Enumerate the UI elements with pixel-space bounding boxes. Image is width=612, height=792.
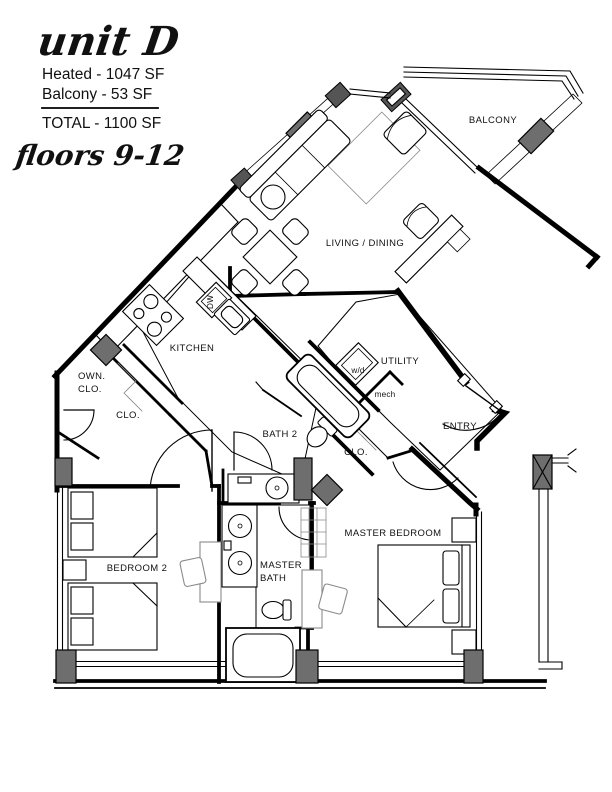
room-label-utility: UTILITY <box>381 356 419 367</box>
column <box>56 650 76 683</box>
twin-bed-1 <box>68 488 157 557</box>
master-bath-door-swing <box>279 507 312 540</box>
room-label-balcony: BALCONY <box>469 115 517 126</box>
floor-plan-drawing: unit D Heated - 1047 SF Balcony - 53 SF … <box>0 0 612 792</box>
desk-chair-b2 <box>180 557 207 587</box>
room-label-entry: ENTRY <box>443 421 477 432</box>
label-mech: mech <box>375 390 396 399</box>
floor-plan-page: unit D Heated - 1047 SF Balcony - 53 SF … <box>0 0 612 792</box>
column <box>296 650 318 683</box>
armchair <box>382 110 427 155</box>
plan-header: unit D Heated - 1047 SF Balcony - 53 SF … <box>12 18 187 172</box>
nightstand-b2 <box>63 560 86 580</box>
own-clo-door-swing <box>64 410 94 440</box>
master-bath-fixtures <box>222 505 300 682</box>
label-owners-closet-1: OWN. <box>78 371 105 382</box>
room-label-bath2: BATH 2 <box>263 429 298 440</box>
heated-area-text: Heated - 1047 SF <box>42 66 164 83</box>
label-dishwasher: DW <box>206 295 215 309</box>
column <box>464 650 483 683</box>
washer-dryer <box>336 343 378 385</box>
corridor-wall <box>479 168 597 257</box>
desk-master <box>302 570 322 628</box>
shower-rod <box>263 390 301 416</box>
balcony-column <box>518 118 553 153</box>
room-label-kitchen: KITCHEN <box>170 343 215 354</box>
master-bed <box>378 545 470 627</box>
room-label-bedroom2: BEDROOM 2 <box>107 563 168 574</box>
entry-wall <box>398 291 466 382</box>
living-furniture <box>205 108 473 322</box>
kitchen-fixtures <box>96 205 256 352</box>
master-toilet <box>262 600 291 620</box>
floors-text: floors 9-12 <box>12 139 187 172</box>
label-closet-master: CLO. <box>344 447 368 458</box>
balcony-area-text: Balcony - 53 SF <box>42 86 152 103</box>
column <box>55 458 72 486</box>
master-bedroom-door-swing <box>393 462 458 490</box>
nightstand-m1 <box>452 518 476 542</box>
label-closet-hall: CLO. <box>116 410 140 421</box>
label-washer-dryer: w/d <box>350 366 365 375</box>
room-label-living-dining: LIVING / DINING <box>326 238 404 249</box>
side-table <box>261 185 285 209</box>
bifold-door <box>118 363 142 411</box>
label-owners-closet-2: CLO. <box>78 384 102 395</box>
corridor <box>533 449 576 669</box>
twin-bed-2 <box>68 583 157 650</box>
master-tub <box>226 628 300 682</box>
bedroom2-door-swing <box>150 430 212 492</box>
room-label-master-bath-1: MASTER <box>260 560 302 571</box>
room-label-master-bath-2: BATH <box>260 573 286 584</box>
plumbing-chase <box>294 458 312 500</box>
room-label-master-bedroom: MASTER BEDROOM <box>345 528 442 539</box>
unit-title: unit D <box>35 18 182 65</box>
column-diamond <box>311 474 342 505</box>
total-area-text: TOTAL - 1100 SF <box>42 115 161 132</box>
